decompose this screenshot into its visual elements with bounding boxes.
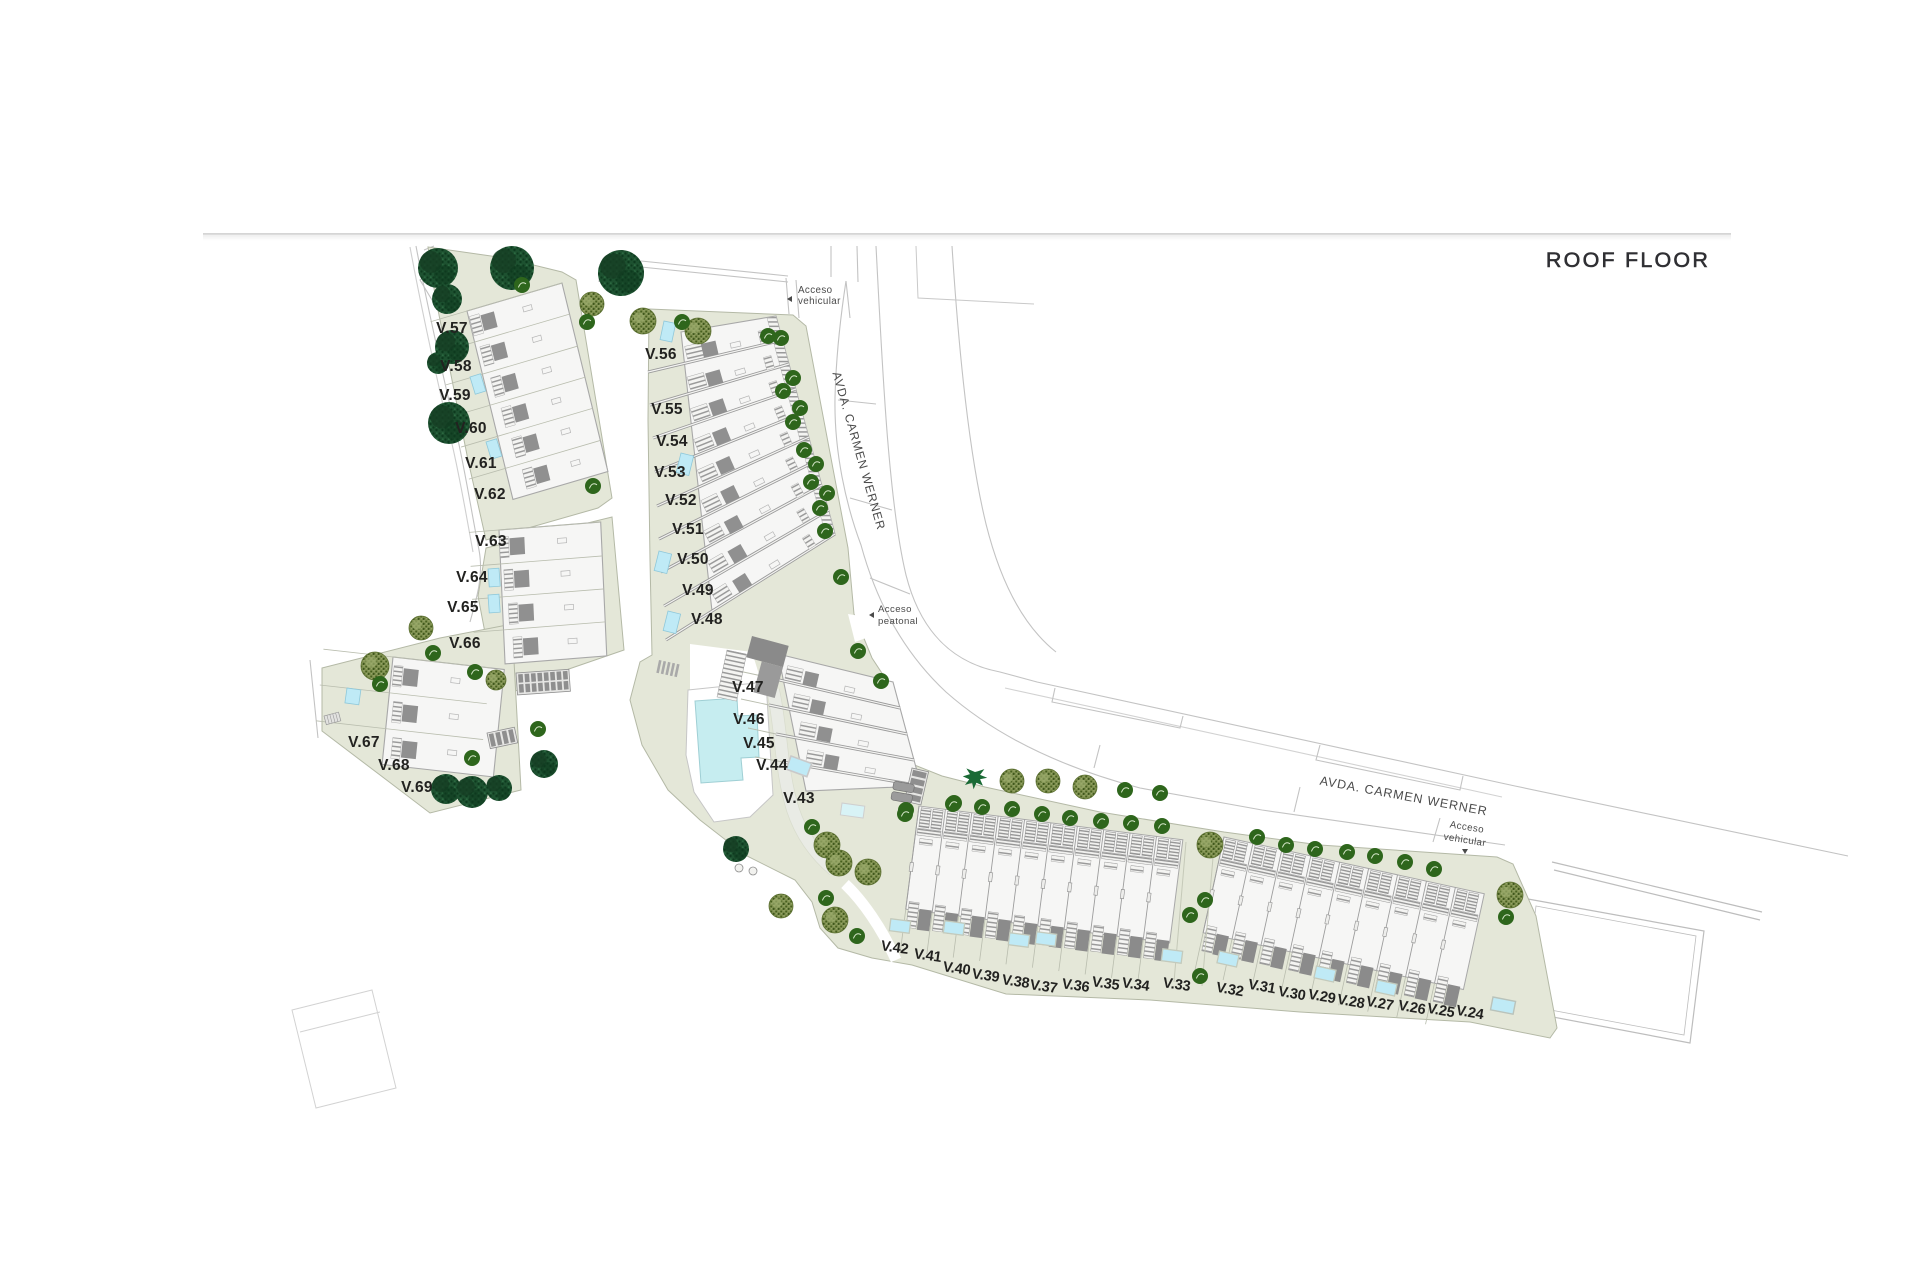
svg-text:V.45: V.45 <box>743 735 775 752</box>
svg-text:ROOF FLOOR: ROOF FLOOR <box>1546 248 1710 272</box>
svg-text:V.67: V.67 <box>348 734 380 751</box>
svg-text:V.61: V.61 <box>465 455 497 472</box>
svg-text:V.47: V.47 <box>732 679 764 696</box>
svg-text:V.56: V.56 <box>645 346 677 363</box>
svg-text:V.63: V.63 <box>475 533 507 550</box>
svg-text:V.53: V.53 <box>654 464 686 481</box>
svg-text:V.66: V.66 <box>449 635 481 652</box>
svg-text:V.49: V.49 <box>682 582 714 599</box>
svg-text:V.69: V.69 <box>401 779 433 796</box>
svg-text:V.68: V.68 <box>378 757 410 774</box>
svg-text:V.50: V.50 <box>677 551 709 568</box>
svg-text:V.46: V.46 <box>733 711 765 728</box>
svg-text:vehicular: vehicular <box>798 296 841 307</box>
svg-text:V.59: V.59 <box>439 387 471 404</box>
svg-text:V.48: V.48 <box>691 611 723 628</box>
svg-text:V.64: V.64 <box>456 569 488 586</box>
svg-text:V.51: V.51 <box>672 521 704 538</box>
svg-text:peatonal: peatonal <box>878 616 918 627</box>
svg-text:Acceso: Acceso <box>798 285 833 296</box>
svg-text:Acceso: Acceso <box>878 604 912 615</box>
svg-text:V.65: V.65 <box>447 599 479 616</box>
svg-text:V.44: V.44 <box>756 757 788 774</box>
svg-text:V.57: V.57 <box>436 320 468 337</box>
svg-text:V.52: V.52 <box>665 492 697 509</box>
svg-text:V.62: V.62 <box>474 486 506 503</box>
svg-text:V.54: V.54 <box>656 433 688 450</box>
svg-text:V.58: V.58 <box>440 358 472 375</box>
svg-text:V.60: V.60 <box>455 420 487 437</box>
svg-text:V.55: V.55 <box>651 401 683 418</box>
svg-text:V.43: V.43 <box>783 790 815 807</box>
